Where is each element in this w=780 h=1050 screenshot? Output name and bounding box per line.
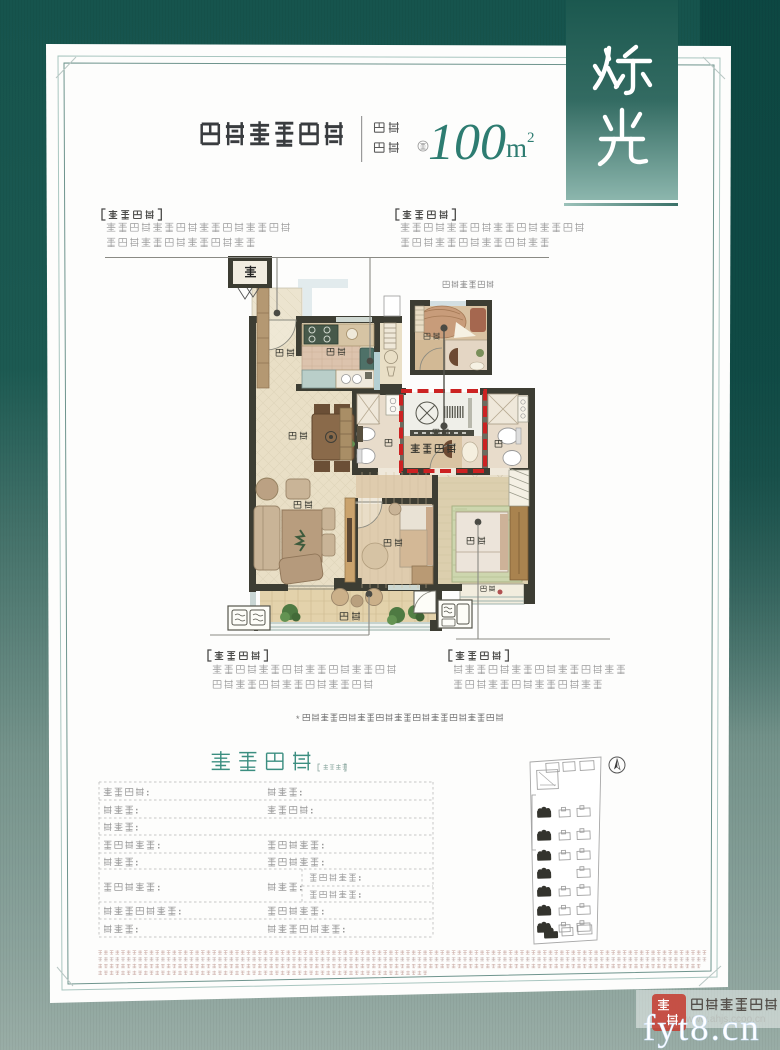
svg-text:*: * [296,714,300,724]
svg-text:m: m [506,133,527,163]
svg-text:fyt8.cn: fyt8.cn [643,1008,761,1049]
svg-text:2: 2 [527,130,535,146]
svg-text:100: 100 [428,114,506,171]
